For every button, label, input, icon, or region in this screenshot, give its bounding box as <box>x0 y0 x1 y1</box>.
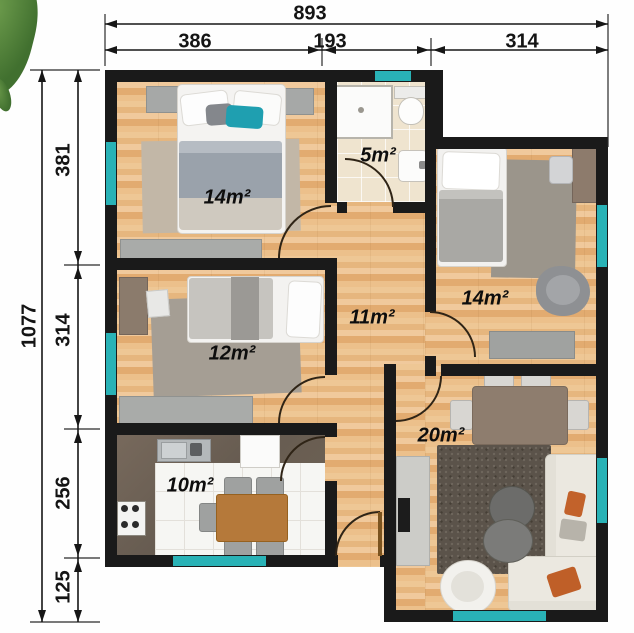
room-label-bedroom2: 14m² <box>462 288 509 311</box>
window-bathroom-top <box>375 71 411 81</box>
dim-top-segment-1: 386 <box>178 31 211 54</box>
wall-bedroom1-bottom <box>105 258 337 270</box>
stove-burner-2 <box>132 505 139 512</box>
bedroom2-pillow <box>441 151 500 191</box>
wall-hall-vertical-upper <box>325 258 337 375</box>
wall-kitchen-top <box>105 423 337 435</box>
tv <box>398 498 410 532</box>
window-kitchen-bottom <box>173 556 266 566</box>
bedroom3-wardrobe <box>119 277 148 335</box>
wall-right-block-top <box>431 137 608 149</box>
kitchen-cabinet <box>240 435 280 468</box>
dim-left-segment-3: 256 <box>53 476 76 509</box>
armchair-cushion <box>451 571 484 602</box>
stove-burner-1 <box>121 505 128 512</box>
dim-left-segment-2: 314 <box>53 313 76 346</box>
coffee-table-2 <box>483 519 533 563</box>
kitchen-sink-basin <box>161 442 187 459</box>
dim-total-height: 1077 <box>19 304 42 349</box>
window-bedroom1-left <box>106 142 116 205</box>
dim-left-segment-4: 125 <box>53 570 76 603</box>
room-label-bedroom1: 14m² <box>204 187 251 210</box>
bedroom2-desk-chair <box>549 156 573 184</box>
wall-living-top <box>441 364 608 376</box>
bedroom2-sideboard <box>489 331 575 359</box>
wall-living-left <box>384 364 396 622</box>
wall-bath-right-bedroom2-left <box>425 70 436 312</box>
bedroom1-nightstand-left <box>146 86 178 113</box>
room-label-hallway: 11m² <box>349 307 394 330</box>
toilet-bowl <box>398 97 424 125</box>
bedroom3-sideboard <box>119 396 253 424</box>
wall-bath-bottom-stub-left <box>337 202 347 213</box>
room-label-bedroom3: 12m² <box>209 343 256 366</box>
bedroom1-nightstand-right <box>282 88 314 115</box>
dining-table <box>472 386 568 445</box>
window-living-right <box>597 458 607 523</box>
shower-drain <box>358 107 364 113</box>
dining-chair-right <box>566 400 589 430</box>
floor-plan-canvas: 893 386 193 314 1077 381 314 256 125 14m… <box>0 0 634 633</box>
wall-bath-left <box>325 70 337 203</box>
shower <box>334 85 393 139</box>
dim-top-segment-3: 314 <box>505 31 538 54</box>
dim-left-segment-1: 381 <box>53 143 76 176</box>
dim-total-width: 893 <box>293 3 326 26</box>
bedroom3-chair <box>146 289 170 318</box>
sofa-pillow-gray <box>559 518 588 541</box>
dim-top-segment-2: 193 <box>313 31 346 54</box>
window-bedroom3-left <box>106 333 116 395</box>
kitchen-table <box>216 494 288 542</box>
bedroom1-pillow-teal <box>225 105 263 130</box>
bedroom3-pillow <box>286 280 323 339</box>
stove-burner-4 <box>132 521 139 528</box>
kitchen-sink-faucet <box>190 443 202 456</box>
window-living-bottom <box>453 611 546 621</box>
room-label-bathroom: 5m² <box>360 145 396 168</box>
stove-burner-3 <box>121 521 128 528</box>
room-label-living: 20m² <box>418 425 465 448</box>
wall-bedroom2-left-stub <box>425 356 436 376</box>
wall-hall-vertical-lower <box>325 481 337 555</box>
bedroom2-lounge-chair-cushion <box>546 275 580 305</box>
bedroom3-blanket-band <box>231 277 259 340</box>
bedroom2-blanket <box>439 190 503 262</box>
window-bedroom2-right <box>597 205 607 267</box>
room-label-kitchen: 10m² <box>167 475 214 498</box>
